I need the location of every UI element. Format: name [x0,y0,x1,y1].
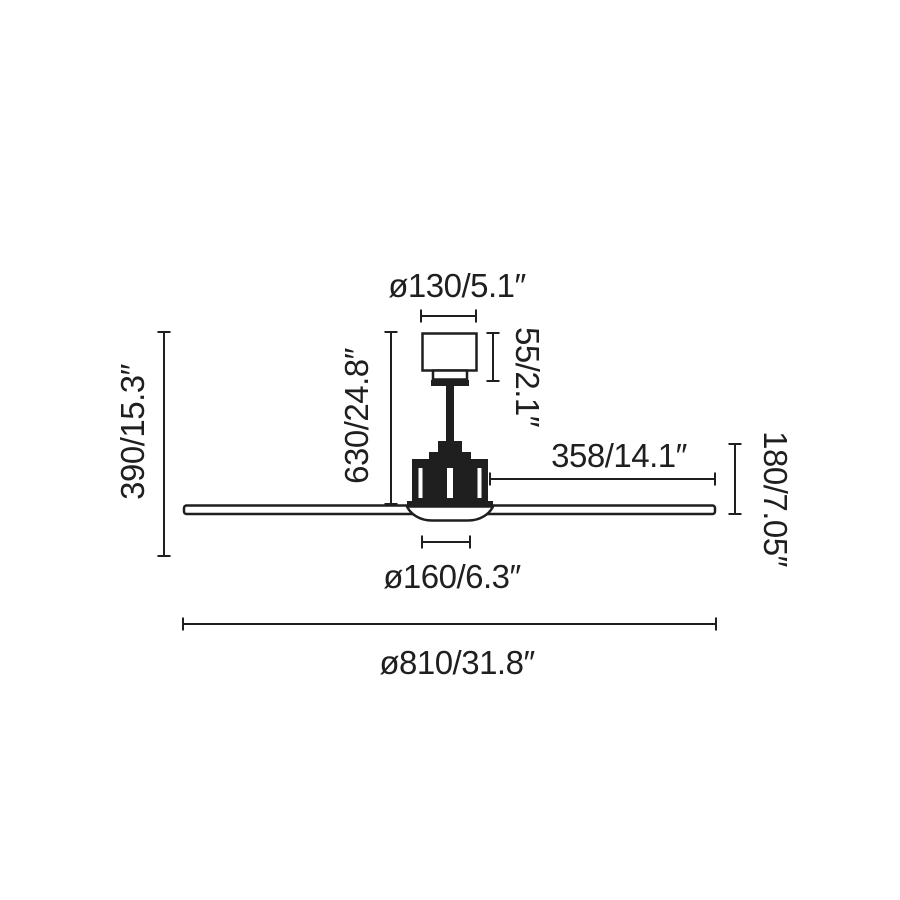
dim-label-canopy-height: 55/2.1″ [509,327,546,428]
dim-label-rod-drop-height: 630/24.8″ [338,347,375,483]
dim-label-body-height: 180/7.05″ [757,431,794,567]
dim-blade-length: 358/14.1″ [490,437,715,486]
dim-label-light-diameter: ø160/6.3″ [383,558,521,595]
dim-label-total-height: 390/15.3″ [114,363,151,499]
fan-motor-mount-lower [429,452,471,460]
fan-blade-right [470,506,715,515]
fan-motor-slot-right [478,468,482,498]
fan-canopy-flange [433,371,467,380]
fan-blade-left [184,506,432,515]
dim-label-blade-length: 358/14.1″ [551,437,687,474]
dim-light-diameter: ø160/6.3″ [383,536,521,596]
dim-total-height: 390/15.3″ [114,332,171,556]
dim-canopy-diameter: ø130/5.1″ [388,267,526,323]
fan-motor-slot-center [447,468,453,498]
dim-label-canopy-diameter: ø130/5.1″ [388,267,526,304]
fan-downrod [446,384,454,444]
fan-canopy [423,334,477,371]
fan-light-diffuser [407,507,493,521]
fan-motor-slot-left [419,468,423,498]
dim-rod-drop-height: 630/24.8″ [338,332,398,504]
dim-canopy-height: 55/2.1″ [487,327,547,428]
dim-fan-diameter: ø810/31.8″ [183,618,716,682]
dim-label-fan-diameter: ø810/31.8″ [379,644,535,681]
dim-body-height: 180/7.05″ [729,431,795,567]
fan-dimension-drawing: ø130/5.1″ 55/2.1″ 630/24.8″ 3 [0,0,900,900]
fan-drawing [184,334,715,521]
diagram-canvas: ø130/5.1″ 55/2.1″ 630/24.8″ 3 [0,0,900,900]
